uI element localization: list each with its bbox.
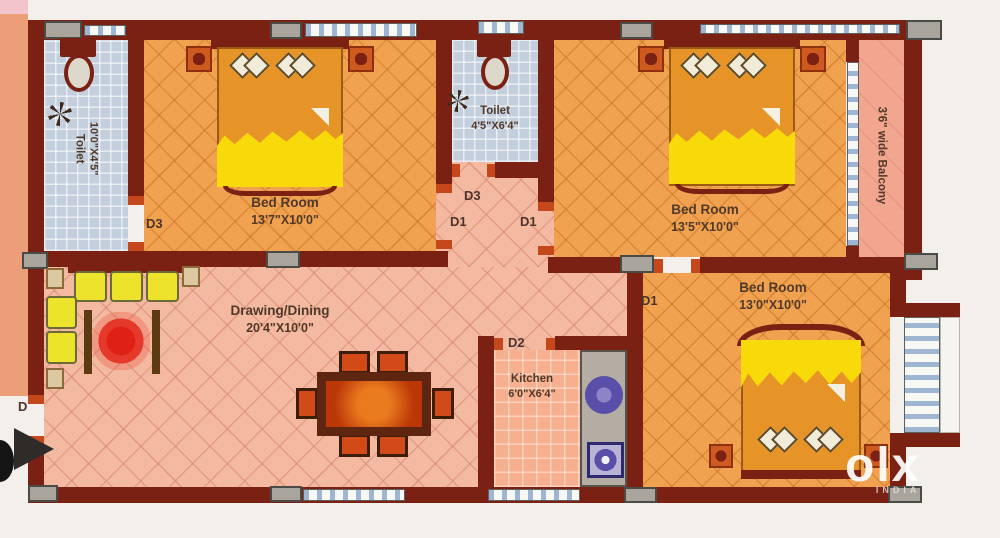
entry-arrow: [14, 428, 54, 470]
bedroom-br-label: Bed Room13'0"X10'0": [688, 279, 858, 313]
sofa-seat: [46, 296, 77, 329]
column: [270, 486, 302, 502]
dining-chair: [339, 351, 370, 374]
door-jamb: [487, 164, 495, 177]
toilet-left-label: 10'0"X4'5"Toilet: [71, 89, 100, 209]
column: [620, 255, 654, 273]
corner-table: [46, 368, 64, 389]
side-table: [800, 46, 826, 72]
column: [624, 487, 657, 503]
wall-right: [904, 20, 922, 280]
door-jamb: [436, 184, 452, 193]
sofa-seat: [74, 271, 107, 302]
balcony-label: 3'6" wide Balcony: [874, 75, 889, 235]
bay-window-sill: [940, 317, 960, 433]
center-table-rail: [84, 310, 92, 374]
dining-chair: [432, 388, 454, 419]
wall-segment: [495, 162, 554, 178]
floor-plan: Bed Room13'7"X10'0" Bed Room13'5"X10'0" …: [0, 0, 1000, 538]
door-jamb: [538, 246, 554, 255]
door-label-d3: D3: [464, 188, 481, 203]
bay-window: [904, 317, 940, 433]
olx-watermark: olx INDIA: [845, 442, 920, 495]
center-table-rail: [152, 310, 160, 374]
red-rug: [92, 312, 150, 370]
window-strip: [303, 489, 405, 501]
olx-watermark-region: INDIA: [845, 486, 920, 495]
bed-footboard: [675, 184, 789, 194]
bedroom-tr-label: Bed Room13'5"X10'0": [615, 201, 795, 235]
corner-table: [46, 268, 64, 289]
door-jamb: [546, 338, 555, 350]
window-strip: [700, 24, 900, 34]
kitchen-label: Kitchen6'0"X6'4": [486, 372, 578, 401]
dining-chair: [377, 434, 408, 457]
door-label-d2: D2: [508, 335, 525, 350]
wall-segment: [478, 336, 494, 487]
sofa-seat: [110, 271, 143, 302]
bay-window-stub: [890, 303, 960, 317]
bed: [211, 40, 349, 196]
window-strip: [478, 21, 524, 34]
dining-chair: [296, 388, 318, 419]
drawing-label: Drawing/Dining20'4"X10'0": [190, 302, 370, 336]
balcony-divider: [846, 40, 859, 62]
door-jamb: [128, 242, 144, 251]
photo-edge-strip: [0, 14, 28, 396]
window-strip: [305, 23, 417, 37]
door-jamb: [654, 259, 663, 273]
door-label-d3: D3: [146, 216, 163, 231]
dining-chair: [377, 351, 408, 374]
door-jamb: [494, 338, 503, 350]
sink-icon: [585, 376, 623, 414]
column: [904, 253, 938, 270]
wc-bowl-icon: [481, 54, 509, 90]
shower-icon: [48, 102, 72, 126]
door-jamb: [436, 240, 452, 249]
dining-chair: [339, 434, 370, 457]
window-strip: [84, 25, 126, 36]
column: [22, 252, 48, 269]
sofa-seat: [146, 271, 179, 302]
window-strip: [488, 489, 580, 501]
door-jamb: [128, 196, 144, 205]
wall-left: [28, 20, 44, 395]
photo-edge-pink: [0, 0, 28, 14]
bed: [664, 40, 800, 194]
toilet-mid-label: Toilet4'5"X6'4": [452, 104, 538, 133]
door-jamb: [28, 395, 44, 404]
column: [620, 22, 653, 39]
door-label-d1: D1: [520, 214, 537, 229]
balcony-divider: [846, 246, 859, 272]
door-jamb: [538, 202, 554, 211]
side-table: [186, 46, 212, 72]
photo-artifact: [0, 440, 14, 482]
wall-segment: [700, 257, 904, 273]
wc-bowl-icon: [64, 54, 94, 92]
bed-footboard: [741, 470, 861, 479]
column: [28, 485, 58, 502]
sofa-seat: [46, 331, 77, 364]
wall-segment: [436, 40, 452, 184]
door-jamb: [452, 164, 460, 177]
door-jamb: [691, 259, 700, 273]
side-table: [638, 46, 664, 72]
wall-segment: [128, 40, 144, 196]
door-label-entry: D: [18, 399, 27, 414]
corner-table: [182, 266, 200, 287]
dining-table: [317, 372, 431, 436]
column: [266, 251, 300, 268]
balcony-sliding-window: [847, 62, 859, 246]
stove-icon: [587, 442, 624, 478]
door-label-d1: D1: [641, 293, 658, 308]
bedroom-tl-label: Bed Room13'7"X10'0": [190, 194, 380, 228]
door-label-d1: D1: [450, 214, 467, 229]
wall-bottom: [28, 487, 922, 503]
column: [270, 22, 302, 39]
column: [906, 20, 942, 40]
column: [44, 21, 82, 39]
side-table: [709, 444, 733, 468]
side-table: [348, 46, 374, 72]
